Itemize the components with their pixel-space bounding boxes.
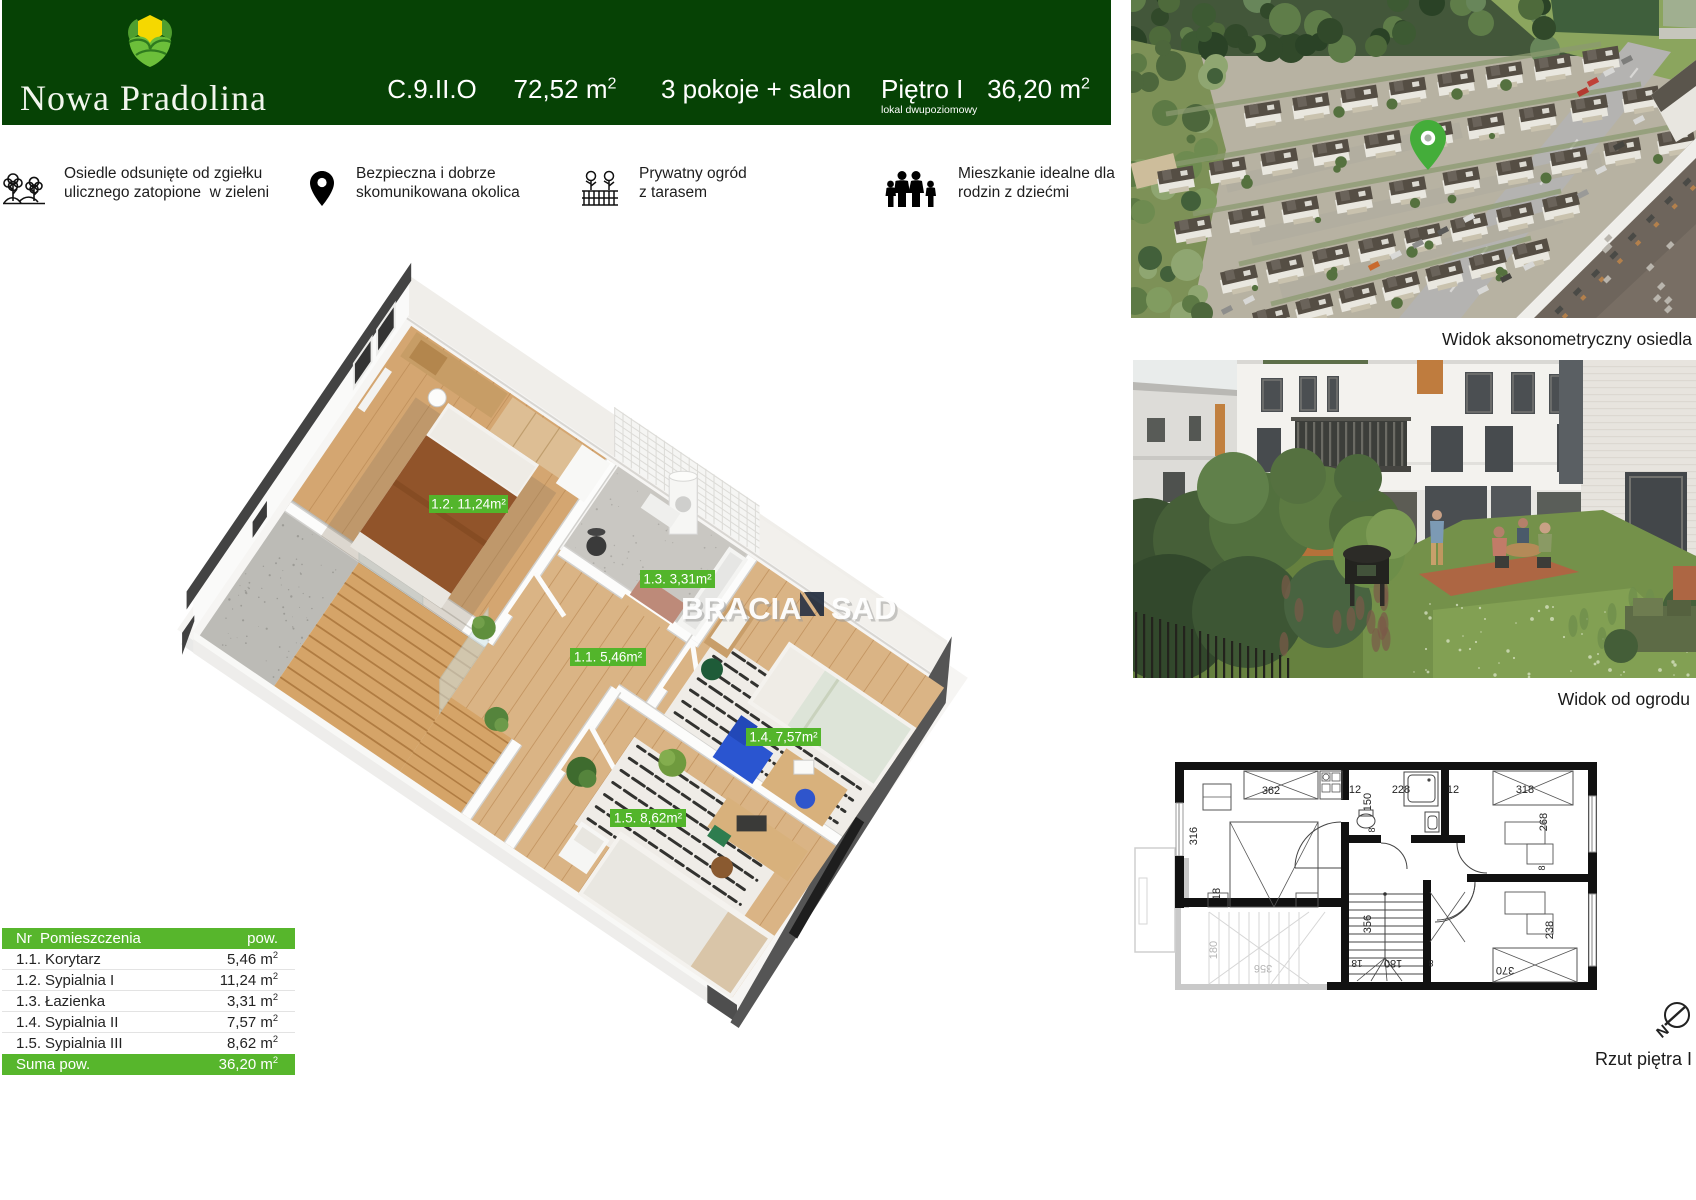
svg-text:370: 370 xyxy=(1496,964,1514,976)
svg-text:1.2. 11,24m²: 1.2. 11,24m² xyxy=(431,497,506,512)
svg-text:316: 316 xyxy=(1188,827,1200,845)
svg-text:12: 12 xyxy=(1349,784,1361,796)
svg-text:1.5. 8,62m²: 1.5. 8,62m² xyxy=(614,811,683,826)
svg-text:356: 356 xyxy=(1254,962,1272,974)
svg-text:SAD: SAD xyxy=(831,591,896,626)
svg-text:8: 8 xyxy=(1537,865,1547,870)
svg-text:150: 150 xyxy=(1362,793,1374,811)
svg-text:8: 8 xyxy=(1367,827,1377,832)
svg-text:1.1. 5,46m²: 1.1. 5,46m² xyxy=(574,650,643,665)
svg-text:8: 8 xyxy=(1428,958,1433,968)
svg-text:238: 238 xyxy=(1544,921,1556,939)
svg-text:180: 180 xyxy=(1384,957,1402,969)
svg-text:362: 362 xyxy=(1262,785,1280,797)
svg-text:18: 18 xyxy=(1211,888,1223,900)
svg-text:18: 18 xyxy=(1351,957,1363,968)
svg-text:228: 228 xyxy=(1392,784,1410,796)
svg-text:1.3. 3,31m²: 1.3. 3,31m² xyxy=(643,572,712,587)
svg-text:1.4. 7,57m²: 1.4. 7,57m² xyxy=(749,730,818,745)
svg-text:318: 318 xyxy=(1516,784,1534,796)
svg-text:356: 356 xyxy=(1362,915,1374,933)
svg-text:12: 12 xyxy=(1447,784,1459,796)
svg-text:180: 180 xyxy=(1208,941,1220,959)
svg-text:BRACIA: BRACIA xyxy=(681,591,802,626)
